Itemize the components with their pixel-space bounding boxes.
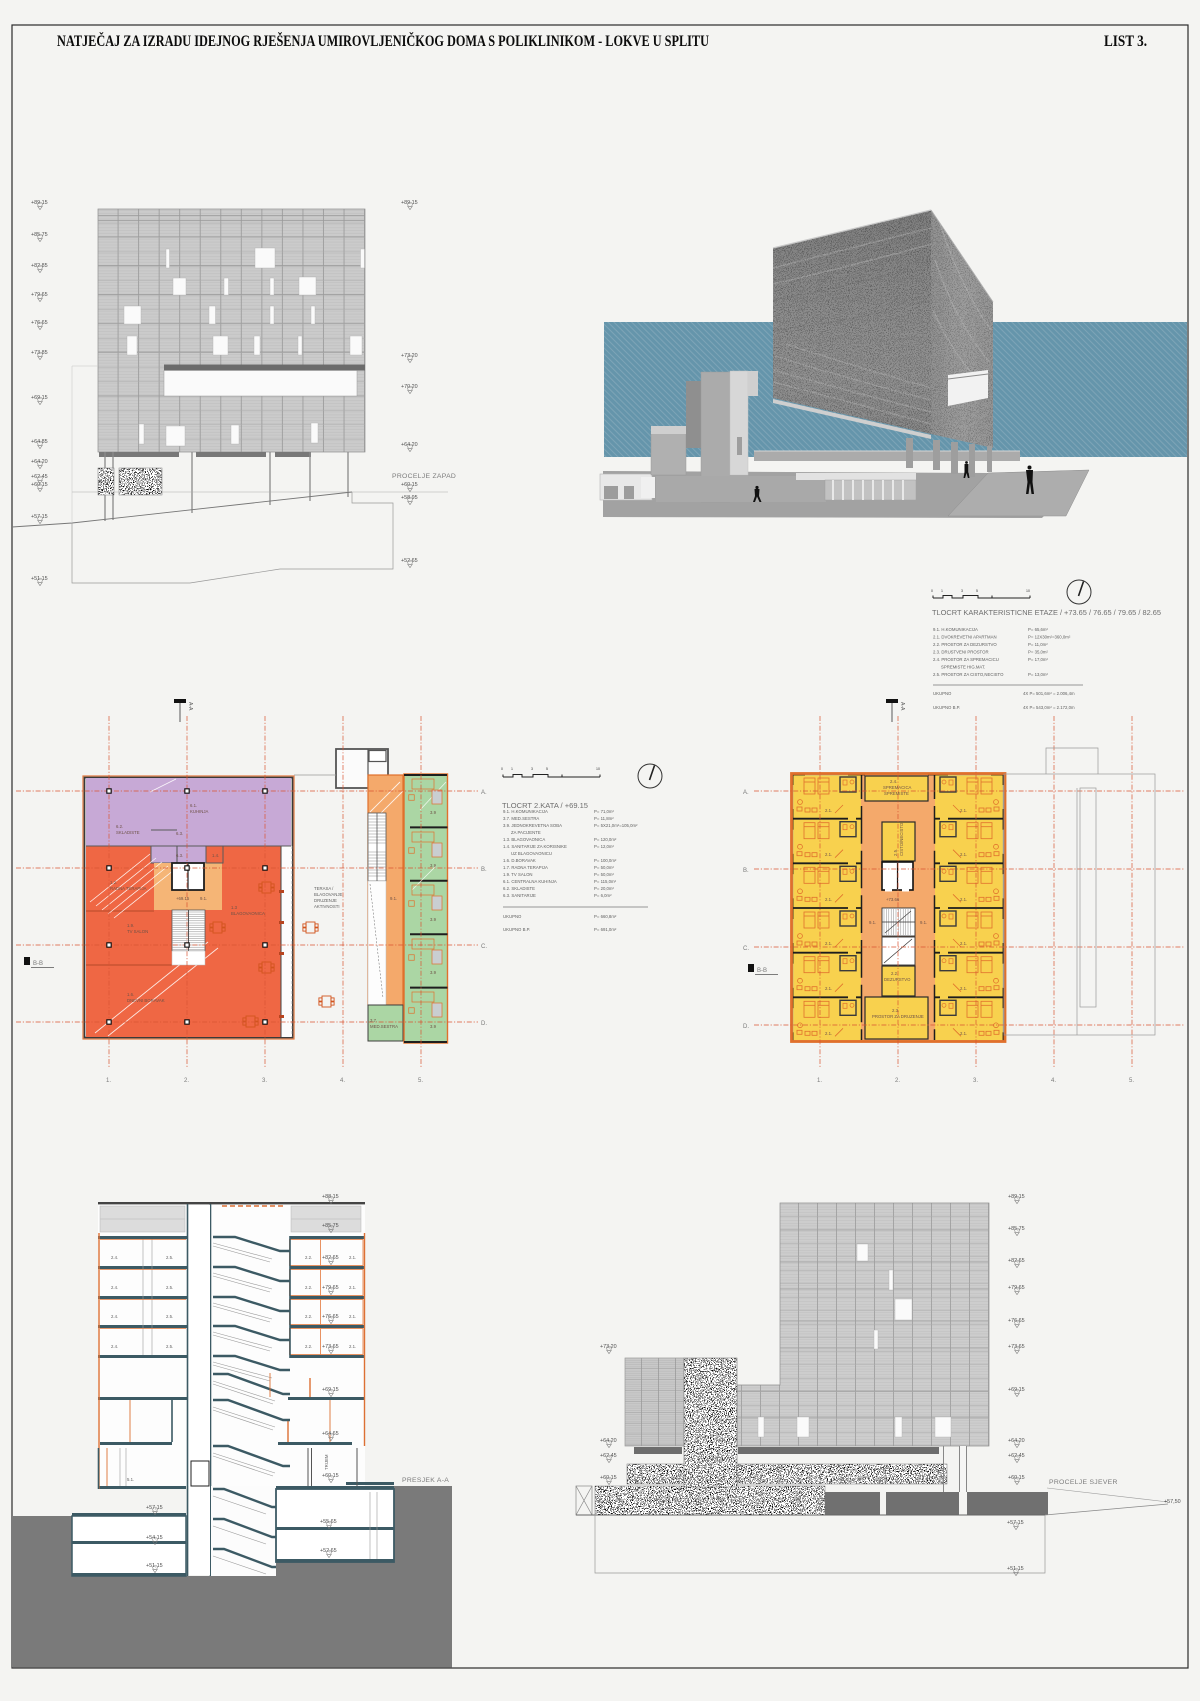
svg-text:+64,65: +64,65: [322, 1431, 339, 1437]
svg-text:2.4.: 2.4.: [111, 1255, 118, 1260]
svg-text:6.3.: 6.3.: [176, 831, 183, 836]
svg-text:+60.15: +60.15: [401, 482, 418, 488]
svg-text:+85,75: +85,75: [322, 1223, 339, 1229]
svg-text:4.: 4.: [340, 1078, 345, 1084]
svg-text:P= 50,0m²: P= 50,0m²: [594, 872, 615, 877]
svg-text:P= 5X21,0m²=105,0m²: P= 5X21,0m²=105,0m²: [594, 823, 638, 828]
svg-text:+52,65: +52,65: [320, 1548, 337, 1554]
svg-text:+62,45: +62,45: [600, 1453, 617, 1459]
svg-text:TERASA /: TERASA /: [314, 886, 334, 891]
svg-text:2.2.: 2.2.: [305, 1255, 312, 1260]
svg-text:6.2. SKLADISTE: 6.2. SKLADISTE: [503, 886, 535, 891]
svg-text:0: 0: [501, 767, 503, 771]
svg-text:+64.85: +64.85: [31, 439, 48, 445]
svg-text:+51,15: +51,15: [146, 1563, 163, 1569]
svg-text:SKLADISTE: SKLADISTE: [116, 830, 140, 835]
svg-text:P= 13,0m²: P= 13,0m²: [1028, 672, 1049, 677]
svg-text:1.3. BLAGOVAONICA: 1.3. BLAGOVAONICA: [503, 837, 545, 842]
svg-text:+85.75: +85.75: [31, 232, 48, 238]
svg-text:2.2.: 2.2.: [891, 971, 898, 976]
svg-text:2.1.: 2.1.: [825, 808, 832, 813]
svg-text:UKUPNO B.P.: UKUPNO B.P.: [933, 705, 960, 710]
svg-text:3: 3: [961, 589, 963, 593]
svg-text:BLAGOVANJE: BLAGOVANJE: [314, 892, 342, 897]
svg-text:+79,65: +79,65: [322, 1285, 339, 1291]
svg-text:3.9: 3.9: [430, 863, 437, 868]
svg-text:A-A: A-A: [899, 702, 905, 711]
svg-text:UKUPNO: UKUPNO: [933, 691, 952, 696]
svg-text:2.1.: 2.1.: [825, 1031, 832, 1036]
svg-text:+85,75: +85,75: [1008, 1226, 1025, 1232]
svg-text:P= 691,0m²: P= 691,0m²: [594, 927, 617, 932]
svg-text:3.: 3.: [973, 1078, 978, 1084]
svg-text:P= 120,0m²: P= 120,0m²: [594, 837, 617, 842]
svg-text:10: 10: [596, 767, 600, 771]
svg-text:PROCELJE ZAPAD: PROCELJE ZAPAD: [392, 473, 456, 480]
svg-text:+57,15: +57,15: [1007, 1520, 1024, 1526]
svg-text:+69.15: +69.15: [31, 395, 48, 401]
svg-text:+82.85: +82.85: [31, 263, 48, 269]
svg-text:6.1.: 6.1.: [190, 803, 197, 808]
svg-text:+73.20: +73.20: [401, 353, 418, 359]
svg-text:9.1. H.KOMUNIKACIJA: 9.1. H.KOMUNIKACIJA: [503, 809, 548, 814]
svg-text:MED.SESTRA: MED.SESTRA: [370, 1024, 398, 1029]
svg-text:2.1.: 2.1.: [349, 1285, 356, 1290]
svg-text:2.1.: 2.1.: [960, 986, 967, 991]
svg-text:1.9.: 1.9.: [127, 923, 134, 928]
svg-text:P= 115,0m²: P= 115,0m²: [594, 879, 617, 884]
svg-text:KUHINJA: KUHINJA: [190, 809, 209, 814]
svg-text:DNEVNI BORAVAK: DNEVNI BORAVAK: [127, 998, 165, 1003]
svg-text:+58.95: +58.95: [401, 495, 418, 501]
svg-text:P= 20,0m²: P= 20,0m²: [594, 886, 615, 891]
svg-text:9.1.: 9.1.: [920, 920, 927, 925]
svg-text:+60,15: +60,15: [600, 1475, 617, 1481]
svg-text:5.: 5.: [1129, 1078, 1134, 1084]
svg-text:2.4. PROSTOR ZA SPREMACICU: 2.4. PROSTOR ZA SPREMACICU: [933, 657, 999, 662]
svg-text:+55,65: +55,65: [320, 1519, 337, 1525]
svg-text:TRIJEM: TRIJEM: [324, 1454, 329, 1470]
svg-text:P= 11,0m²: P= 11,0m²: [1028, 642, 1048, 647]
svg-text:+60,15: +60,15: [322, 1473, 339, 1479]
svg-text:2.1.: 2.1.: [825, 852, 832, 857]
svg-text:1.7. RADNA TERAPIJA: 1.7. RADNA TERAPIJA: [503, 865, 548, 870]
svg-text:2.3.: 2.3.: [892, 1008, 899, 1013]
svg-text:P= 17,0m²: P= 17,0m²: [1028, 657, 1049, 662]
svg-text:9.1.: 9.1.: [390, 896, 397, 901]
svg-text:UKUPNO B.P.: UKUPNO B.P.: [503, 927, 530, 932]
svg-text:DRUZENJE: DRUZENJE: [314, 898, 337, 903]
svg-text:A.: A.: [481, 790, 487, 796]
svg-text:5: 5: [546, 767, 548, 771]
svg-text:+52.65: +52.65: [401, 558, 418, 564]
svg-text:+51.15: +51.15: [31, 576, 48, 582]
svg-text:LIST 3.: LIST 3.: [1104, 33, 1147, 50]
svg-text:5.: 5.: [418, 1078, 423, 1084]
svg-text:2.3. DRUSTVENI PROSTOR: 2.3. DRUSTVENI PROSTOR: [933, 650, 989, 655]
svg-text:+73,65: +73,65: [1008, 1344, 1025, 1350]
svg-text:+73.85: +73.85: [31, 350, 48, 356]
svg-text:2.1.: 2.1.: [349, 1314, 356, 1319]
svg-text:1: 1: [511, 767, 513, 771]
svg-text:D.: D.: [481, 1021, 487, 1027]
svg-text:P= 12,0m²: P= 12,0m²: [594, 844, 615, 849]
svg-text:10: 10: [1026, 589, 1030, 593]
svg-text:+64.20: +64.20: [401, 442, 418, 448]
svg-text:2.1.: 2.1.: [825, 941, 832, 946]
svg-text:2.1.: 2.1.: [960, 808, 967, 813]
svg-text:+89,15: +89,15: [1008, 1194, 1025, 1200]
svg-text:2.2.: 2.2.: [305, 1285, 312, 1290]
svg-text:+76,65: +76,65: [322, 1314, 339, 1320]
svg-text:UZ BLAGOVAONICU: UZ BLAGOVAONICU: [511, 851, 552, 856]
svg-text:2.5.: 2.5.: [166, 1285, 173, 1290]
svg-text:9.1.: 9.1.: [869, 920, 876, 925]
svg-text:2.: 2.: [895, 1078, 900, 1084]
svg-text:P= 6,0m²: P= 6,0m²: [594, 893, 612, 898]
svg-text:P= 100,0m²: P= 100,0m²: [594, 858, 617, 863]
svg-text:C.: C.: [743, 946, 749, 952]
svg-text:3.9: 3.9: [430, 970, 437, 975]
svg-text:SPREMISTE: SPREMISTE: [884, 791, 909, 796]
svg-text:1.9. TV SALON: 1.9. TV SALON: [503, 872, 533, 877]
svg-text:AKTIVNOSTI: AKTIVNOSTI: [314, 904, 340, 909]
svg-text:3: 3: [531, 767, 533, 771]
svg-text:1.6.: 1.6.: [127, 992, 134, 997]
svg-text:P= 71,0m²: P= 71,0m²: [594, 809, 615, 814]
svg-text:1.6. D.BORAVAK: 1.6. D.BORAVAK: [503, 858, 536, 863]
svg-text:2.5.: 2.5.: [166, 1255, 173, 1260]
svg-text:+64,20: +64,20: [1008, 1438, 1025, 1444]
svg-text:6.1. CENTRALNA KUHINJA: 6.1. CENTRALNA KUHINJA: [503, 879, 557, 884]
svg-text:2.2. PROSTOR ZA DEZURSTVO: 2.2. PROSTOR ZA DEZURSTVO: [933, 642, 997, 647]
svg-text:D.: D.: [743, 1024, 749, 1030]
svg-text:+73,65: +73,65: [322, 1344, 339, 1350]
svg-text:1.4.: 1.4.: [212, 853, 219, 858]
svg-text:A.: A.: [743, 790, 749, 796]
svg-text:B-B: B-B: [757, 968, 767, 974]
svg-text:SPREMISTE HIG.MAT.: SPREMISTE HIG.MAT.: [941, 665, 985, 670]
svg-text:2.1.: 2.1.: [960, 1031, 967, 1036]
svg-text:P= 35,0m²: P= 35,0m²: [1028, 650, 1049, 655]
svg-text:1.: 1.: [817, 1078, 822, 1084]
svg-text:2.5.: 2.5.: [166, 1344, 173, 1349]
svg-text:P= 65,6m²: P= 65,6m²: [1028, 627, 1049, 632]
svg-text:1.: 1.: [106, 1078, 111, 1084]
svg-text:UKUPNO: UKUPNO: [503, 914, 522, 919]
svg-text:PROSTOR ZA DRUZENJE: PROSTOR ZA DRUZENJE: [872, 1014, 924, 1019]
svg-text:+73,20: +73,20: [600, 1344, 617, 1350]
svg-text:B-B: B-B: [33, 961, 43, 967]
svg-text:+82,65: +82,65: [322, 1255, 339, 1261]
svg-text:3.9. JEDNOKREVETNA SOBA: 3.9. JEDNOKREVETNA SOBA: [503, 823, 562, 828]
svg-text:TV SALON: TV SALON: [127, 929, 148, 934]
svg-text:3.9: 3.9: [430, 917, 437, 922]
svg-text:2.5. PROSTOR ZA CISTO,NECISTO: 2.5. PROSTOR ZA CISTO,NECISTO: [933, 672, 1004, 677]
svg-text:P= 12X30m²=360,0m²: P= 12X30m²=360,0m²: [1028, 635, 1071, 640]
svg-text:4.: 4.: [1051, 1078, 1056, 1084]
svg-text:9.1.: 9.1.: [200, 896, 207, 901]
svg-text:2.1.: 2.1.: [960, 897, 967, 902]
svg-text:5.1.: 5.1.: [127, 1477, 134, 1482]
svg-text:1.4. SANITARIJE ZA KORISNIKE: 1.4. SANITARIJE ZA KORISNIKE: [503, 844, 567, 849]
svg-text:ZA PACIJENTE: ZA PACIJENTE: [511, 830, 541, 835]
svg-text:4X P= 501,6m² = 2.006,4m: 4X P= 501,6m² = 2.006,4m: [1023, 691, 1075, 696]
svg-text:2.1.: 2.1.: [825, 986, 832, 991]
svg-text:+79.65: +79.65: [31, 292, 48, 298]
svg-text:+57,50: +57,50: [1164, 1499, 1181, 1505]
svg-text:2.2.: 2.2.: [305, 1314, 312, 1319]
svg-text:2.4.: 2.4.: [890, 779, 897, 784]
svg-text:PRESJEK A-A: PRESJEK A-A: [402, 1477, 449, 1484]
svg-text:SPREMACICA: SPREMACICA: [883, 785, 912, 790]
svg-text:B.: B.: [743, 868, 749, 874]
svg-text:+69.15: +69.15: [176, 896, 190, 901]
svg-text:+89.15: +89.15: [401, 200, 418, 206]
svg-text:PROCELJE SJEVER: PROCELJE SJEVER: [1049, 1479, 1118, 1486]
svg-text:2.4.: 2.4.: [111, 1344, 118, 1349]
svg-text:3.7.: 3.7.: [370, 1018, 377, 1023]
svg-text:+51,15: +51,15: [1007, 1566, 1024, 1572]
svg-text:A-A: A-A: [187, 702, 193, 711]
svg-text:+60,15: +60,15: [1008, 1475, 1025, 1481]
svg-text:RADNA TERAPIJA: RADNA TERAPIJA: [110, 886, 147, 891]
svg-text:DEZURSTVO: DEZURSTVO: [884, 977, 911, 982]
svg-text:+88,15: +88,15: [322, 1194, 339, 1200]
svg-text:6.3.: 6.3.: [176, 853, 183, 858]
svg-text:1.2.: 1.2.: [110, 880, 117, 885]
svg-text:CISTO/NECISTO: CISTO/NECISTO: [899, 822, 904, 856]
svg-text:2.1. DVOKREVETNI APARTMAN: 2.1. DVOKREVETNI APARTMAN: [933, 635, 997, 640]
svg-text:2.4.: 2.4.: [111, 1285, 118, 1290]
svg-text:P= 11,8m²: P= 11,8m²: [594, 816, 614, 821]
svg-text:4X P= 543,0m² = 2.172,0m: 4X P= 543,0m² = 2.172,0m: [1023, 705, 1075, 710]
svg-text:+62.45: +62.45: [31, 474, 48, 480]
svg-text:2.1.: 2.1.: [960, 852, 967, 857]
svg-text:+79,65: +79,65: [1008, 1285, 1025, 1291]
svg-text:1.3: 1.3: [231, 905, 238, 910]
svg-text:+62,45: +62,45: [1008, 1453, 1025, 1459]
svg-text:9.1. H.KOMUNIKACIJA: 9.1. H.KOMUNIKACIJA: [933, 627, 978, 632]
svg-text:2.: 2.: [184, 1078, 189, 1084]
svg-text:TLOCRT KARAKTERISTICNE ETAZE /: TLOCRT KARAKTERISTICNE ETAZE / +73.65 / …: [932, 608, 1161, 617]
svg-text:2.5.: 2.5.: [166, 1314, 173, 1319]
svg-text:+76.65: +76.65: [31, 320, 48, 326]
svg-text:+54,15: +54,15: [146, 1535, 163, 1541]
svg-text:+69,15: +69,15: [322, 1387, 339, 1393]
svg-text:2.1.: 2.1.: [349, 1344, 356, 1349]
svg-text:2.4.: 2.4.: [111, 1314, 118, 1319]
svg-text:3.: 3.: [262, 1078, 267, 1084]
svg-text:P= 50,0m²: P= 50,0m²: [594, 865, 615, 870]
svg-text:C.: C.: [481, 944, 487, 950]
svg-text:2.1.: 2.1.: [349, 1255, 356, 1260]
svg-text:3.9: 3.9: [430, 810, 437, 815]
svg-text:+82,65: +82,65: [1008, 1258, 1025, 1264]
svg-text:+69,15: +69,15: [1008, 1387, 1025, 1393]
svg-text:2.2.: 2.2.: [305, 1344, 312, 1349]
svg-text:2.1.: 2.1.: [960, 941, 967, 946]
svg-text:B.: B.: [481, 867, 487, 873]
svg-text:3.7. MED.SESTRA: 3.7. MED.SESTRA: [503, 816, 539, 821]
svg-text:5: 5: [976, 589, 978, 593]
svg-text:+64,20: +64,20: [600, 1438, 617, 1444]
svg-text:+57,15: +57,15: [146, 1505, 163, 1511]
svg-text:1: 1: [941, 589, 943, 593]
svg-text:+89.15: +89.15: [31, 200, 48, 206]
svg-text:+57.15: +57.15: [31, 514, 48, 520]
svg-text:6.3. SANITARIJE: 6.3. SANITARIJE: [503, 893, 536, 898]
svg-text:BLAGOVAONICA: BLAGOVAONICA: [231, 911, 265, 916]
svg-text:2.5.: 2.5.: [893, 849, 898, 856]
svg-text:NATJEČAJ ZA IZRADU IDEJNOG RJE: NATJEČAJ ZA IZRADU IDEJNOG RJEŠENJA UMIR…: [57, 31, 709, 50]
svg-text:+76,65: +76,65: [1008, 1318, 1025, 1324]
svg-text:+73.66: +73.66: [886, 897, 900, 902]
svg-text:+60.15: +60.15: [31, 482, 48, 488]
svg-text:+64.20: +64.20: [31, 459, 48, 465]
svg-text:+70.20: +70.20: [401, 384, 418, 390]
svg-text:2.1.: 2.1.: [825, 897, 832, 902]
svg-text:0: 0: [931, 589, 933, 593]
svg-text:3.9: 3.9: [430, 1024, 437, 1029]
svg-text:P= 660,8m²: P= 660,8m²: [594, 914, 617, 919]
svg-text:6.2.: 6.2.: [116, 824, 123, 829]
